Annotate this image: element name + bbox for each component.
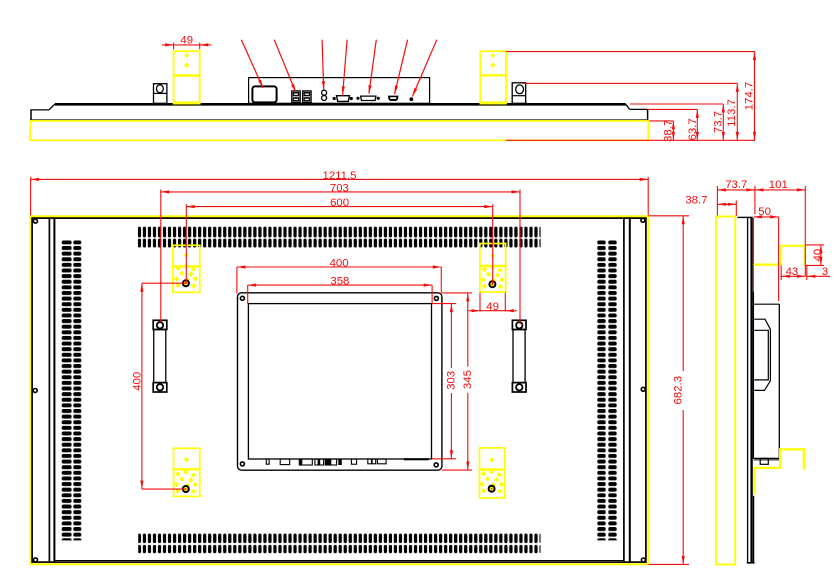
svg-text:400: 400 [132,372,144,391]
svg-text:3: 3 [822,266,828,278]
svg-text:49: 49 [486,301,499,313]
svg-text:358: 358 [330,276,349,288]
svg-text:400: 400 [330,258,349,270]
svg-text:1211.5: 1211.5 [323,170,357,182]
svg-text:38.7: 38.7 [663,120,675,142]
svg-text:101: 101 [769,179,788,191]
svg-text:682.3: 682.3 [673,376,685,405]
svg-text:703: 703 [330,183,349,195]
svg-text:345: 345 [462,370,474,389]
svg-text:73.7: 73.7 [725,179,747,191]
svg-text:40: 40 [812,249,824,262]
svg-text:113.7: 113.7 [726,99,738,127]
svg-text:63.7: 63.7 [687,118,699,140]
svg-text:50: 50 [758,206,771,218]
svg-text:174.7: 174.7 [744,82,756,111]
svg-text:73.7: 73.7 [712,111,724,133]
svg-text:600: 600 [330,197,349,209]
svg-text:38.7: 38.7 [685,194,707,206]
svg-text:43: 43 [786,266,799,278]
svg-text:303: 303 [445,371,457,390]
svg-text:49: 49 [180,35,193,47]
